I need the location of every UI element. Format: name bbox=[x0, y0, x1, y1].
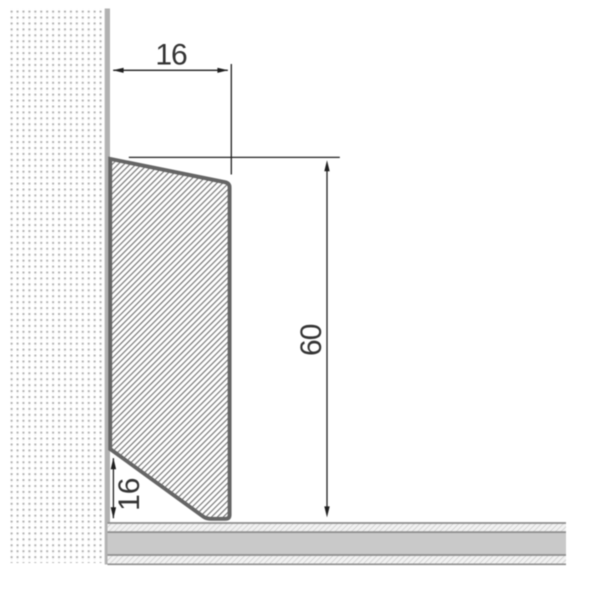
svg-text:60: 60 bbox=[295, 324, 328, 356]
svg-text:16: 16 bbox=[113, 478, 146, 511]
svg-text:16: 16 bbox=[155, 38, 187, 71]
